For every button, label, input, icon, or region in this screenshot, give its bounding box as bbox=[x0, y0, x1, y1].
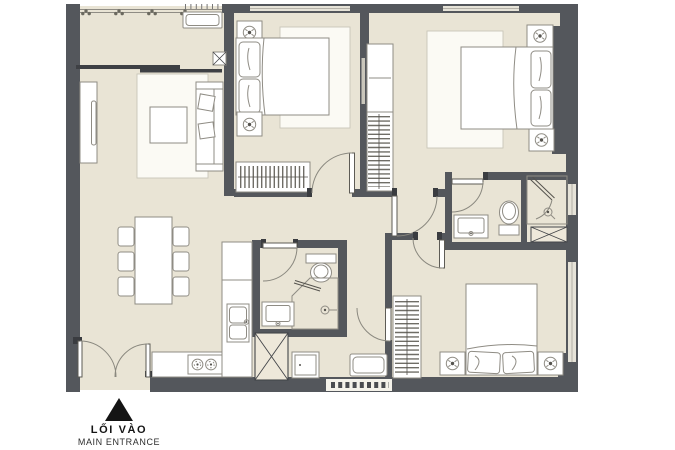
floorplan-drawing bbox=[0, 0, 675, 450]
door-leaf bbox=[386, 308, 392, 341]
wardrobe bbox=[236, 162, 310, 192]
chair-icon bbox=[173, 227, 189, 246]
refrigerator-icon bbox=[292, 352, 319, 378]
door-leaf bbox=[452, 179, 483, 184]
chair-icon bbox=[118, 227, 134, 246]
door-leaf bbox=[440, 240, 445, 268]
floorplan-canvas: LỐI VÀO MAIN ENTRANCE bbox=[0, 0, 675, 450]
entrance-marker: LỐI VÀO MAIN ENTRANCE bbox=[49, 398, 189, 447]
bedroom-bottom-right bbox=[393, 284, 563, 378]
entrance-label-en: MAIN ENTRANCE bbox=[49, 437, 189, 447]
coffee-table bbox=[150, 107, 187, 143]
wardrobe bbox=[367, 112, 393, 191]
pillow-icon bbox=[239, 42, 260, 77]
dining-area bbox=[118, 217, 189, 304]
sliding-door-panel bbox=[140, 69, 222, 73]
sliding-door bbox=[76, 65, 180, 69]
cabinet bbox=[222, 242, 252, 280]
chair-icon bbox=[173, 277, 189, 296]
cushion-icon bbox=[198, 122, 215, 139]
door-leaf bbox=[263, 243, 297, 248]
wardrobe bbox=[393, 296, 421, 378]
chair-icon bbox=[173, 252, 189, 271]
pillow-icon bbox=[239, 79, 260, 113]
door-leaf bbox=[78, 341, 82, 377]
door-leaf bbox=[350, 153, 355, 193]
pillow-icon bbox=[502, 351, 534, 374]
dining-table bbox=[135, 217, 172, 304]
tv-icon bbox=[92, 101, 97, 145]
door-leaf bbox=[392, 196, 397, 236]
sofa bbox=[196, 82, 223, 171]
door-leaf bbox=[146, 344, 150, 377]
up-triangle-icon bbox=[105, 398, 133, 421]
cushion-icon bbox=[198, 94, 215, 111]
chair-icon bbox=[118, 252, 134, 271]
chair-icon bbox=[118, 277, 134, 296]
wardrobe-door bbox=[362, 58, 366, 104]
pillow-icon bbox=[467, 351, 500, 374]
entrance-label-vi: LỐI VÀO bbox=[49, 424, 189, 436]
toilet-icon bbox=[499, 201, 519, 235]
